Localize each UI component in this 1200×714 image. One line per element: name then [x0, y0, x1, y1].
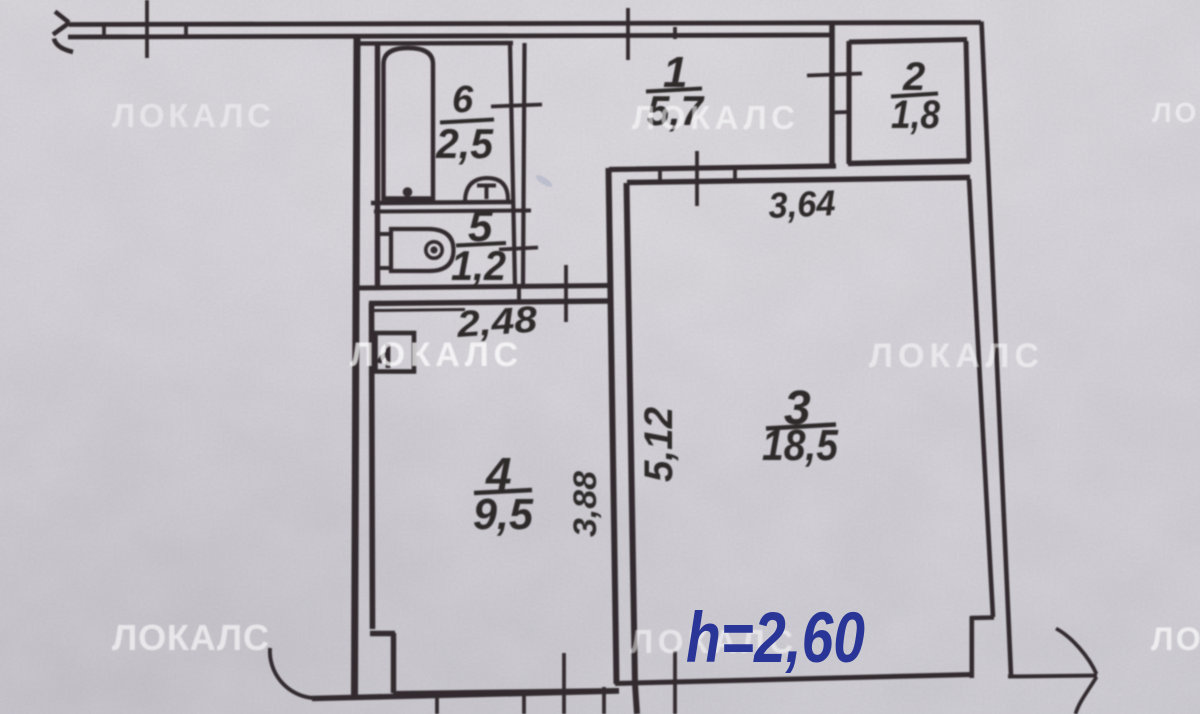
svg-text:1,2: 1,2 — [451, 242, 506, 289]
svg-text:ЛОКАЛС: ЛОКАЛС — [1152, 97, 1200, 128]
svg-text:1,8: 1,8 — [891, 93, 941, 137]
svg-text:9,5: 9,5 — [473, 490, 534, 539]
svg-text:3,64: 3,64 — [768, 182, 837, 226]
svg-text:18,5: 18,5 — [762, 421, 838, 470]
svg-text:3,88: 3,88 — [567, 471, 603, 537]
svg-text:ЛОКАЛС: ЛОКАЛС — [112, 617, 269, 658]
svg-text:h=2,60: h=2,60 — [686, 599, 865, 678]
svg-text:2,5: 2,5 — [435, 120, 494, 167]
svg-text:5,12: 5,12 — [637, 407, 681, 482]
svg-text:6: 6 — [452, 79, 474, 121]
svg-text:ЛОКАЛС: ЛОКАЛС — [1151, 621, 1200, 657]
